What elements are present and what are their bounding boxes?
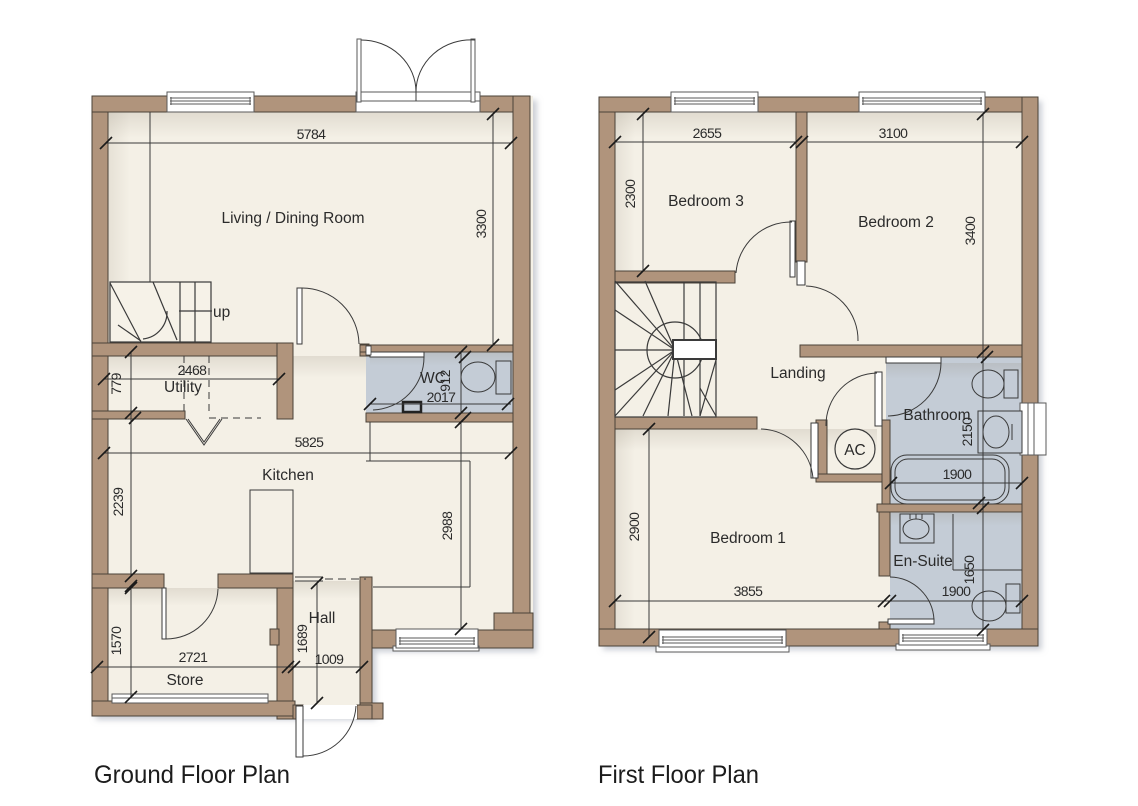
svg-text:3400: 3400 xyxy=(962,216,978,246)
svg-text:Bedroom 1: Bedroom 1 xyxy=(710,530,786,547)
svg-text:2017: 2017 xyxy=(427,389,457,405)
svg-text:2300: 2300 xyxy=(622,179,638,209)
svg-text:En-Suite: En-Suite xyxy=(893,553,952,570)
svg-text:1900: 1900 xyxy=(943,466,973,482)
svg-text:3100: 3100 xyxy=(879,125,909,141)
svg-text:Utility: Utility xyxy=(164,379,202,396)
svg-text:1900: 1900 xyxy=(942,583,972,599)
svg-text:2239: 2239 xyxy=(110,487,126,517)
svg-text:5825: 5825 xyxy=(295,434,325,450)
svg-text:Ground Floor Plan: Ground Floor Plan xyxy=(94,761,290,789)
svg-text:Hall: Hall xyxy=(309,610,336,627)
svg-text:2468: 2468 xyxy=(178,362,208,378)
svg-text:1570: 1570 xyxy=(108,626,124,656)
svg-text:1650: 1650 xyxy=(961,555,977,585)
svg-text:3300: 3300 xyxy=(473,209,489,239)
svg-text:2721: 2721 xyxy=(179,649,209,665)
svg-text:Store: Store xyxy=(166,672,203,689)
svg-text:779: 779 xyxy=(108,372,124,394)
svg-text:Bathroom: Bathroom xyxy=(903,407,970,424)
svg-text:2655: 2655 xyxy=(693,125,723,141)
svg-text:5784: 5784 xyxy=(297,126,327,142)
svg-text:Bedroom 3: Bedroom 3 xyxy=(668,193,744,210)
svg-text:2988: 2988 xyxy=(439,511,455,541)
svg-text:up: up xyxy=(213,304,230,321)
svg-text:Living / Dining Room: Living / Dining Room xyxy=(221,210,364,227)
svg-text:3855: 3855 xyxy=(734,583,764,599)
svg-text:Kitchen: Kitchen xyxy=(262,467,314,484)
svg-text:1009: 1009 xyxy=(315,651,345,667)
svg-text:2900: 2900 xyxy=(626,512,642,542)
svg-text:WC: WC xyxy=(420,370,446,387)
svg-text:Bedroom 2: Bedroom 2 xyxy=(858,214,934,231)
svg-text:First Floor Plan: First Floor Plan xyxy=(598,761,759,789)
svg-text:Landing: Landing xyxy=(770,365,825,382)
svg-text:1689: 1689 xyxy=(294,624,310,654)
svg-text:AC: AC xyxy=(844,442,866,459)
